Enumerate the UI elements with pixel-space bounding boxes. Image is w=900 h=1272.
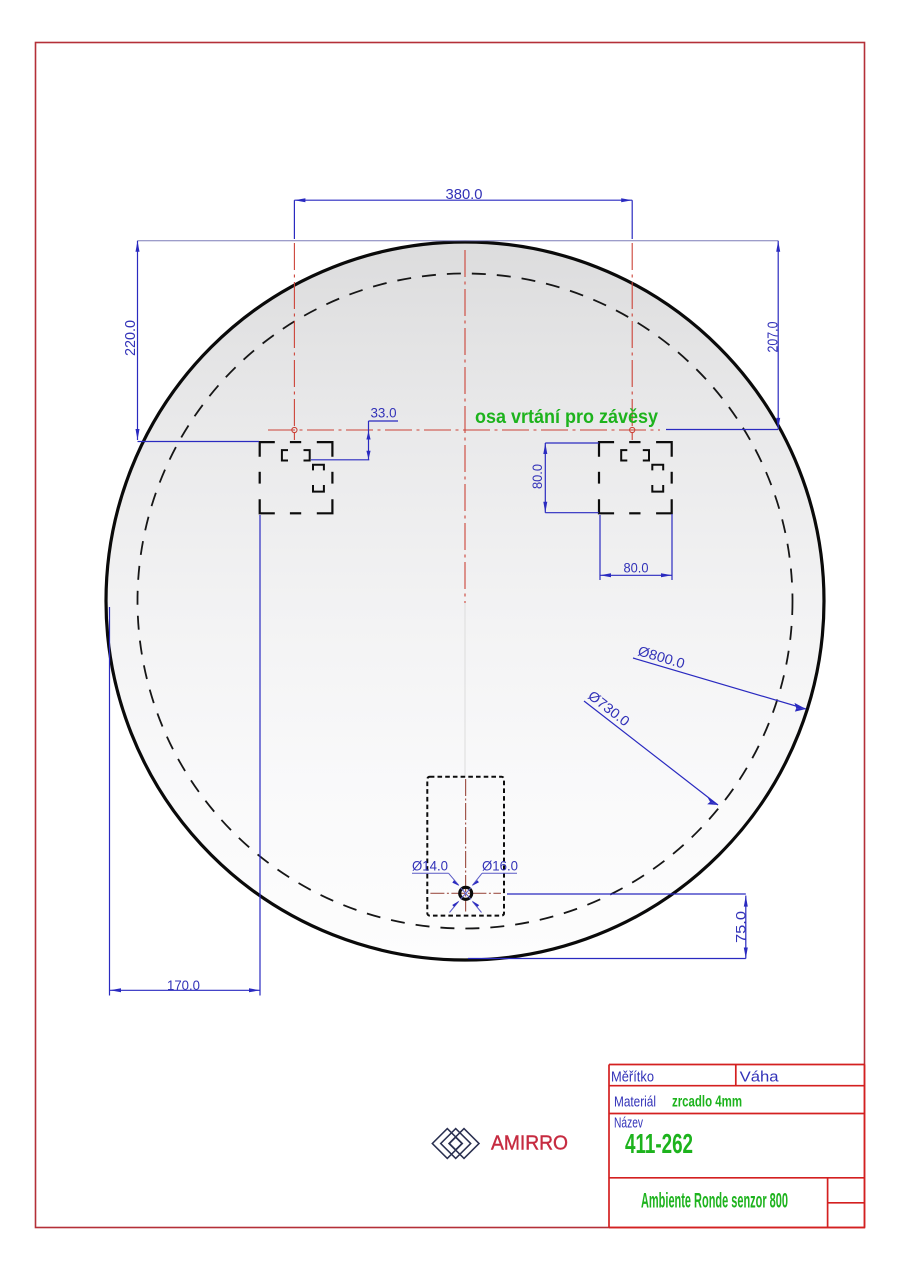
svg-text:Ø14.0: Ø14.0 bbox=[412, 858, 448, 874]
svg-text:80.0: 80.0 bbox=[624, 560, 649, 576]
svg-text:Ambiente Ronde senzor 800: Ambiente Ronde senzor 800 bbox=[641, 1190, 788, 1213]
svg-text:380.0: 380.0 bbox=[446, 186, 483, 203]
svg-text:Materiál: Materiál bbox=[614, 1094, 656, 1111]
svg-text:220.0: 220.0 bbox=[122, 320, 139, 356]
svg-text:Váha: Váha bbox=[740, 1069, 780, 1086]
svg-text:zrcadlo 4mm: zrcadlo 4mm bbox=[672, 1094, 742, 1111]
svg-text:411-262: 411-262 bbox=[625, 1128, 693, 1159]
svg-text:33.0: 33.0 bbox=[371, 405, 397, 421]
svg-text:80.0: 80.0 bbox=[529, 464, 545, 489]
svg-text:75.0: 75.0 bbox=[733, 911, 749, 943]
svg-text:170.0: 170.0 bbox=[167, 977, 200, 993]
svg-text:207.0: 207.0 bbox=[765, 322, 782, 353]
svg-text:Měřítko: Měřítko bbox=[611, 1069, 654, 1086]
svg-text:Ø16.0: Ø16.0 bbox=[482, 858, 518, 874]
svg-text:osa vrtání pro závěsy: osa vrtání pro závěsy bbox=[475, 407, 658, 428]
svg-text:AMIRRO: AMIRRO bbox=[491, 1132, 568, 1155]
